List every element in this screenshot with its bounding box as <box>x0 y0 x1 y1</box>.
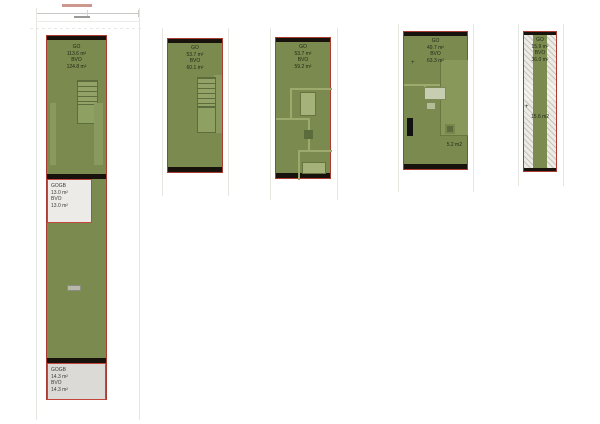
dashed-guide <box>30 28 142 29</box>
extension-line <box>398 24 399 192</box>
shower-icon <box>304 130 313 139</box>
plus-marker: + <box>411 60 415 66</box>
bvo-value: 59.2 m² <box>276 64 330 71</box>
extension-line <box>270 28 271 200</box>
staircase-icon <box>197 77 216 107</box>
floorplan-unit-1: GO 113.6 m² BVO 124.8 m² GOGB 13.0 m² BV… <box>46 35 107 400</box>
area-label-unit-1: GO 113.6 m² BVO 124.8 m² <box>47 44 106 70</box>
gogb-label-bottom: GOGB 14.3 m² BVO 14.3 m² <box>51 367 68 393</box>
extension-line <box>473 24 474 192</box>
bed-icon <box>302 162 326 174</box>
wall-offset-left <box>50 103 56 165</box>
exterior-wall-bottom <box>168 167 222 172</box>
interior-partition <box>290 88 292 118</box>
toilet-icon <box>426 102 436 110</box>
bathroom-fixture-icon <box>424 87 446 100</box>
extension-line <box>228 28 229 196</box>
extension-line <box>518 24 519 186</box>
floorplan-unit-3: GO 53.7 m² BVO 59.2 m² <box>275 37 331 179</box>
gogb-bvo-value: 13.0 m² <box>51 203 68 210</box>
exterior-wall-top <box>168 39 222 43</box>
extension-line <box>162 28 163 196</box>
area-label-unit-2: GO 53.7 m² BVO 60.1 m² <box>168 45 222 71</box>
extension-line <box>139 8 140 420</box>
furniture-icon <box>67 285 81 291</box>
hatched-block <box>524 82 533 100</box>
extension-line <box>337 28 338 200</box>
interior-partition <box>298 150 332 152</box>
floorplan-sheet: GO 113.6 m² BVO 124.8 m² GOGB 13.0 m² BV… <box>0 0 600 424</box>
extension-line <box>36 8 37 420</box>
extension-line <box>563 24 564 186</box>
exterior-wall-bottom <box>524 168 556 171</box>
floorplan-unit-2: GO 53.7 m² BVO 60.1 m² <box>167 38 223 173</box>
outdoor-area-box-bottom: GOGB 14.3 m² BVO 14.3 m² <box>47 363 106 400</box>
gogb-type: GOGB <box>51 183 68 190</box>
floorplan-unit-5: GO 15.9 m² BVO 36.0 m² + 15.6 m2 <box>523 31 557 172</box>
exterior-wall-top <box>276 38 330 42</box>
stair-landing <box>197 107 216 133</box>
exterior-wall-bottom <box>404 164 467 169</box>
dimension-value-smudge <box>74 16 90 18</box>
interior-partition <box>404 84 440 86</box>
area-label-unit-5: GO 15.9 m² BVO 36.0 m² <box>524 37 556 63</box>
gogb-label-top: GOGB 13.0 m² BVO 13.0 m² <box>51 183 68 209</box>
gogb-type: GOGB <box>51 367 68 374</box>
wall-offset-right <box>94 103 103 165</box>
room-area-label: 5.2 m2 <box>447 142 462 148</box>
bvo-value: 36.0 m² <box>524 57 556 64</box>
area-label-unit-3: GO 53.7 m² BVO 59.2 m² <box>276 44 330 70</box>
interior-partition <box>290 88 332 90</box>
bed-icon <box>300 92 316 116</box>
gogb-bvo-value: 14.3 m² <box>51 387 68 394</box>
dimension-text-smudge <box>62 4 92 7</box>
floorplan-unit-4: GO 49.7 m² BVO 63.3 m² + 5.2 m2 <box>403 31 468 170</box>
exterior-wall-top <box>47 36 106 40</box>
room-area-label: 15.6 m2 <box>531 114 549 120</box>
interior-partition <box>276 118 310 120</box>
dimension-line-faint <box>36 21 139 22</box>
bvo-value: 124.8 m² <box>47 64 106 71</box>
plus-marker: + <box>525 104 529 110</box>
outdoor-area-box-top: GOGB 13.0 m² BVO 13.0 m² <box>47 179 92 223</box>
interior-partition <box>298 150 300 180</box>
hatched-block <box>547 82 556 100</box>
entry-door-icon <box>407 118 413 136</box>
exterior-wall-top <box>404 32 467 36</box>
shower-icon <box>445 124 455 134</box>
bvo-value: 60.1 m² <box>168 65 222 72</box>
